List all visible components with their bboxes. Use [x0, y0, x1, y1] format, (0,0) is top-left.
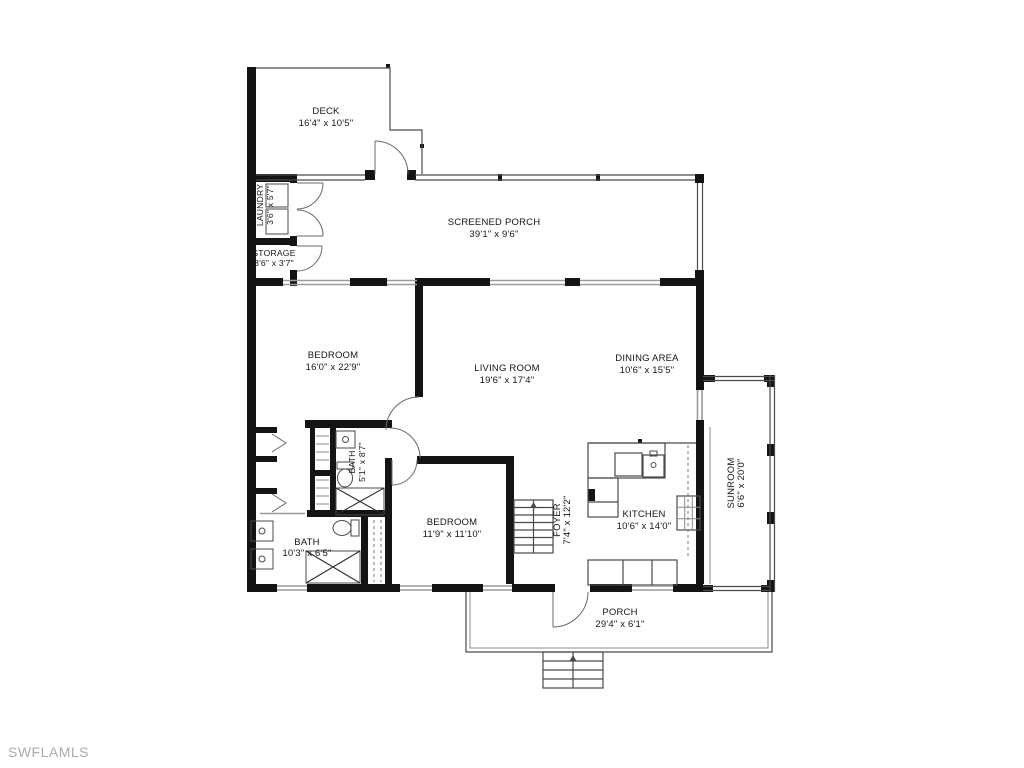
bath1-door-arc — [390, 428, 420, 458]
bath1-sink — [336, 431, 355, 448]
floor-plan: DECK 16'4" x 10'5" SCREENED PORCH 39'1" … — [0, 0, 1024, 768]
svg-text:3'6" x 5'7": 3'6" x 5'7" — [265, 185, 275, 225]
svg-text:7'4" x 12'2": 7'4" x 12'2" — [562, 495, 573, 544]
svg-text:DINING AREA: DINING AREA — [615, 353, 679, 364]
room-label-deck: DECK 16'4" x 10'5" — [299, 106, 354, 129]
svg-text:5'1" x 8'7": 5'1" x 8'7" — [357, 442, 367, 482]
laundry-door-arc — [297, 183, 323, 209]
svg-text:STORAGE: STORAGE — [252, 248, 295, 258]
windows — [260, 281, 702, 591]
svg-text:19'6" x 17'4": 19'6" x 17'4" — [480, 375, 535, 386]
porch-steps — [543, 652, 603, 688]
room-label-bedroom1: BEDROOM 16'0" x 22'9" — [306, 350, 361, 373]
svg-text:3'6" x 3'7": 3'6" x 3'7" — [254, 258, 294, 268]
svg-text:39'1" x 9'6": 39'1" x 9'6" — [469, 229, 518, 240]
room-label-bath2: BATH 10'3" x 6'5" — [282, 537, 331, 559]
floorplan-page: DECK 16'4" x 10'5" SCREENED PORCH 39'1" … — [0, 0, 1024, 768]
deck-door-arc — [375, 141, 408, 174]
laundry-door2-arc — [297, 210, 323, 236]
room-label-laundry: LAUNDRY 3'6" x 5'7" — [255, 184, 275, 226]
entry-door-arc — [553, 592, 588, 627]
svg-text:16'0" x 22'9": 16'0" x 22'9" — [306, 362, 361, 373]
svg-text:BATH: BATH — [294, 537, 319, 548]
room-label-bedroom2: BEDROOM 11'9" x 11'10" — [423, 517, 482, 540]
room-label-dining-area: DINING AREA 10'6" x 15'5" — [615, 353, 679, 376]
svg-text:10'6" x 14'0": 10'6" x 14'0" — [617, 521, 672, 532]
room-labels: DECK 16'4" x 10'5" SCREENED PORCH 39'1" … — [252, 106, 747, 630]
room-label-kitchen: KITCHEN 10'6" x 14'0" — [617, 509, 672, 532]
storage-door-arc — [297, 246, 322, 271]
foyer-stairs — [514, 500, 553, 553]
svg-text:16'4" x 10'5": 16'4" x 10'5" — [299, 118, 354, 129]
svg-text:PORCH: PORCH — [602, 607, 637, 618]
svg-text:LAUNDRY: LAUNDRY — [255, 184, 265, 226]
svg-text:BEDROOM: BEDROOM — [308, 350, 359, 361]
room-label-porch: PORCH 29'4" x 6'1" — [595, 607, 644, 630]
svg-text:6'6" x 20'0": 6'6" x 20'0" — [736, 458, 747, 507]
room-label-screened-porch: SCREENED PORCH 39'1" x 9'6" — [448, 217, 541, 240]
room-label-foyer: FOYER 7'4" x 12'2" — [552, 495, 573, 544]
closet-door-chevron — [272, 494, 286, 512]
svg-text:BATH: BATH — [347, 450, 357, 473]
closet-door-chevron — [272, 434, 286, 452]
svg-text:11'9" x 11'10": 11'9" x 11'10" — [423, 529, 482, 540]
svg-text:BEDROOM: BEDROOM — [427, 517, 478, 528]
svg-text:DECK: DECK — [312, 106, 340, 117]
svg-text:29'4" x 6'1": 29'4" x 6'1" — [595, 619, 644, 630]
room-label-living-room: LIVING ROOM 19'6" x 17'4" — [474, 363, 540, 386]
mls-watermark: SWFLAMLS — [8, 744, 89, 760]
doors — [297, 141, 588, 627]
walls — [247, 64, 775, 592]
svg-text:10'3" x 6'5": 10'3" x 6'5" — [282, 548, 331, 559]
bath2-toilet — [333, 521, 351, 536]
bedroom2-door-arc — [392, 460, 417, 485]
bath2-toilet-tank — [351, 520, 359, 536]
svg-text:10'6" x 15'5": 10'6" x 15'5" — [620, 365, 675, 376]
svg-text:KITCHEN: KITCHEN — [622, 509, 665, 520]
room-label-storage: STORAGE 3'6" x 3'7" — [252, 248, 295, 268]
svg-text:LIVING ROOM: LIVING ROOM — [474, 363, 540, 374]
svg-text:SCREENED PORCH: SCREENED PORCH — [448, 217, 541, 228]
room-label-sunroom: SUNROOM 6'6" x 20'0" — [726, 457, 747, 508]
